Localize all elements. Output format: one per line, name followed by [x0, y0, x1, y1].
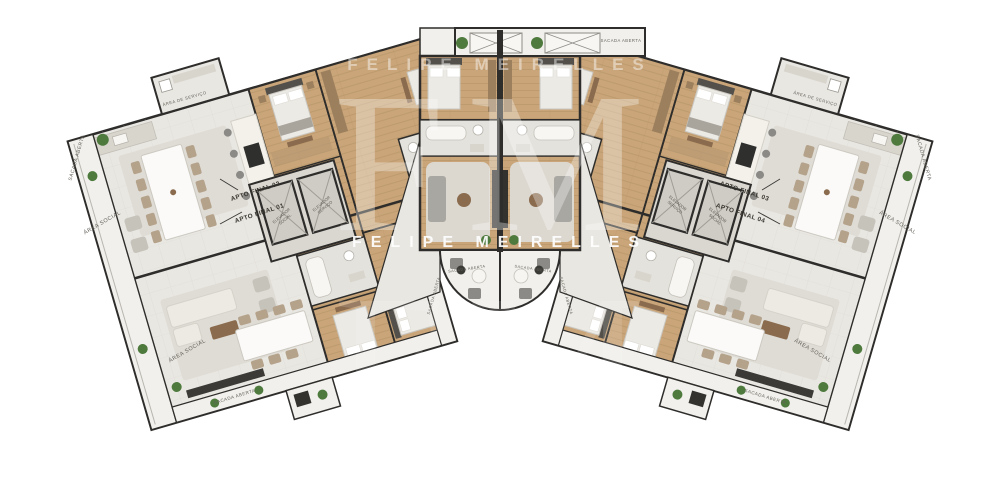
watermark-name-top: FELIPE MEIRELLES	[347, 55, 653, 74]
plant	[456, 37, 468, 49]
watermark: FM FM FELIPE MEIRELLES FELIPE MEIRELLES …	[333, 53, 666, 476]
room-label-sacada: SACADA ABERTA	[601, 38, 642, 43]
plant	[531, 37, 543, 49]
watermark-name-bottom: FELIPE MEIRELLES	[347, 407, 653, 426]
watermark-name: FELIPE MEIRELLES	[352, 234, 648, 251]
shaft-hatch	[470, 33, 522, 53]
watermark-initials-lower: FM	[333, 255, 666, 476]
floor-plan-svg: APTO FINAL 02 APTO FINAL 01 ÁREA SOCIAL …	[0, 0, 1000, 480]
floor-plan-page: APTO FINAL 02 APTO FINAL 01 ÁREA SOCIAL …	[0, 0, 1000, 480]
shaft-hatch-2	[545, 33, 600, 53]
